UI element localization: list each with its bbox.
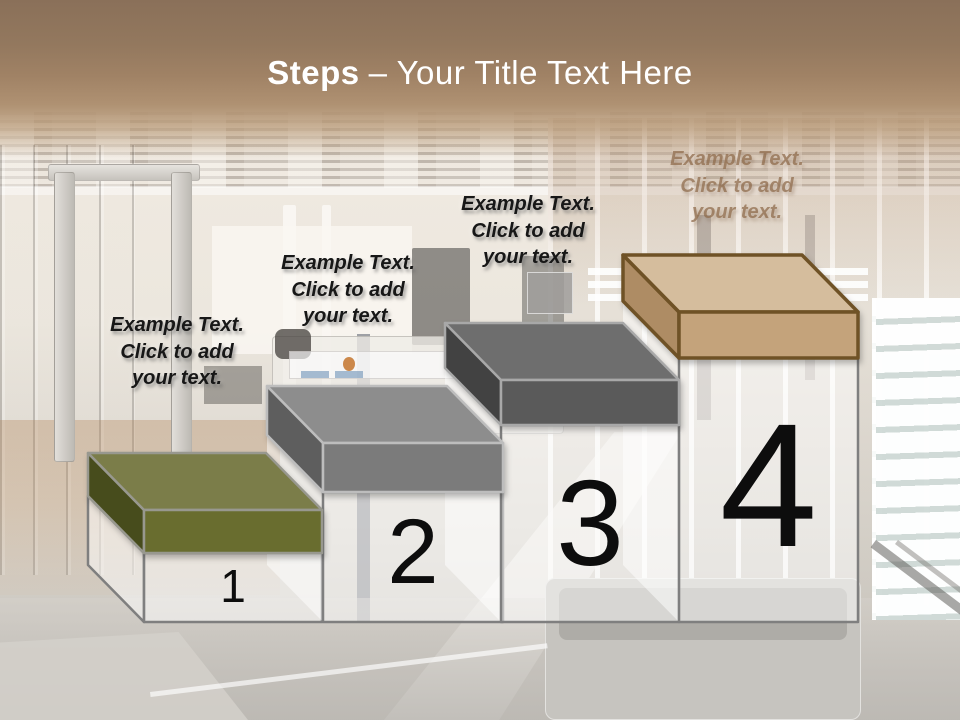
label-line: Click to add [622, 173, 852, 200]
label-line: your text. [413, 244, 643, 271]
step-1-number[interactable]: 1 [144, 563, 322, 609]
label-line: Example Text. [622, 146, 852, 173]
label-line: your text. [233, 303, 463, 330]
label-line: Click to add [413, 218, 643, 245]
slab-front-face [323, 443, 503, 492]
label-line: Example Text. [413, 191, 643, 218]
slab-front-face [679, 312, 858, 358]
step-4-number[interactable]: 4 [679, 398, 858, 574]
slab-front-face [501, 380, 679, 425]
step-3-label[interactable]: Example Text. Click to add your text. [413, 191, 643, 271]
label-line: Click to add [233, 277, 463, 304]
label-line: your text. [62, 365, 292, 392]
label-line: Click to add [62, 339, 292, 366]
step-2-number[interactable]: 2 [323, 506, 503, 598]
slab-front-face [144, 510, 322, 553]
step-4-label[interactable]: Example Text. Click to add your text. [622, 146, 852, 226]
label-line: your text. [622, 199, 852, 226]
slide-canvas: Steps– Your Title Text Here [0, 0, 960, 720]
step-3-number[interactable]: 3 [501, 462, 679, 584]
